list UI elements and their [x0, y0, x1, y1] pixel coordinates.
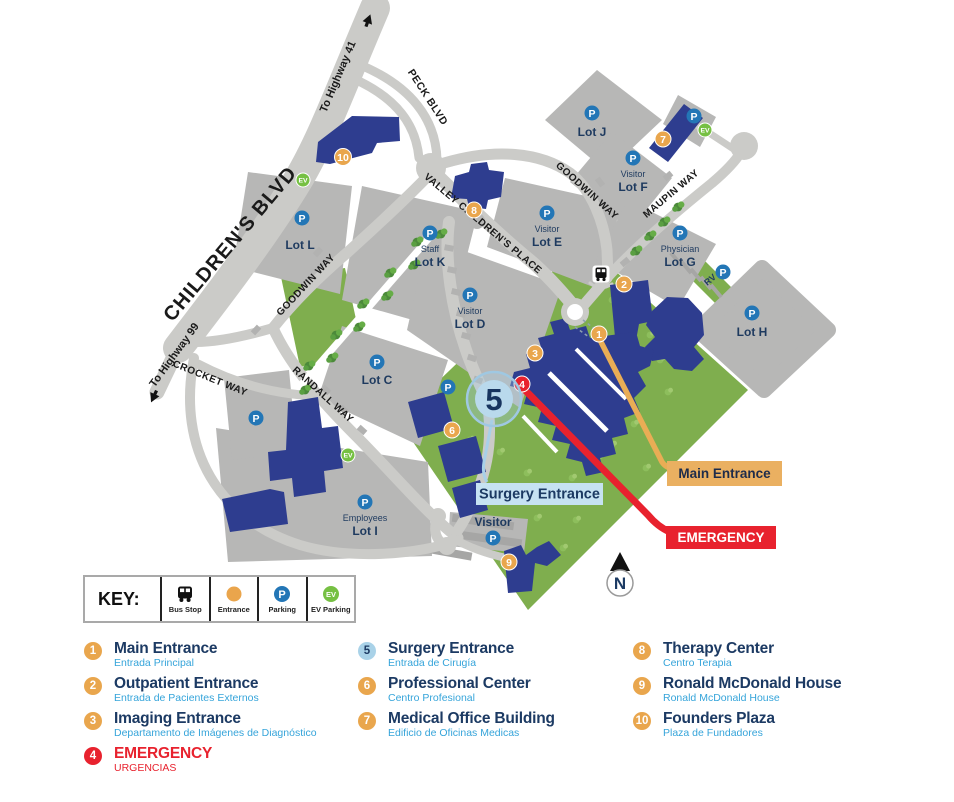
label-lot-e-sub: Visitor [535, 224, 560, 234]
legend-title-6: Professional Center [388, 676, 531, 692]
svg-text:6: 6 [449, 425, 455, 437]
ev-parking-icon: EV [322, 585, 340, 603]
key-title: KEY: [85, 577, 160, 621]
parking-icon-structure [249, 411, 264, 426]
legend-item-6: 6 Professional Center Centro Profesional [358, 676, 628, 711]
parking-icon-surgery [441, 380, 456, 395]
legend-item-9: 9 Ronald McDonald House Ronald McDonald … [633, 676, 903, 711]
label-lot-c: Lot C [362, 373, 393, 387]
legend-title-8: Therapy Center [663, 641, 774, 657]
ev-parking-icon-lot-i [341, 448, 355, 462]
label-lot-h: Lot H [737, 325, 768, 339]
parking-icon-rv [716, 265, 731, 280]
svg-text:2: 2 [621, 279, 627, 291]
legend-marker-6: 6 [358, 677, 376, 695]
svg-text:P: P [279, 589, 286, 601]
map-marker-3: 3 [527, 345, 543, 361]
parking-icon-lot-k [423, 226, 438, 241]
legend-subtitle-7: Edificio de Oficinas Medicas [388, 728, 555, 739]
label-lot-g-sub: Physician [661, 244, 700, 254]
label-lot-k: Lot K [415, 255, 446, 269]
svg-text:1: 1 [596, 329, 602, 341]
legend-title-3: Imaging Entrance [114, 711, 317, 727]
legend-marker-2: 2 [84, 677, 102, 695]
legend-column-2: 5 Surgery Entrance Entrada de Cirugía 6 … [358, 641, 628, 746]
legend-title-10: Founders Plaza [663, 711, 775, 727]
legend-subtitle-2: Entrada de Pacientes Externos [114, 693, 259, 704]
north-label: N [614, 574, 626, 593]
emergency-label: EMERGENCY [677, 530, 764, 545]
label-lot-f-sub: Visitor [621, 169, 646, 179]
legend-column-1: 1 Main Entrance Entrada Principal 2 Outp… [84, 641, 354, 781]
label-lot-e: Lot E [532, 235, 562, 249]
legend-title-9: Ronald McDonald House [663, 676, 841, 692]
key-item-entrance: Entrance [209, 577, 258, 621]
parking-icon: P [273, 585, 291, 603]
surgery-entrance-label: Surgery Entrance [479, 487, 600, 503]
label-lot-g: Lot G [664, 255, 695, 269]
legend-title-4: EMERGENCY [114, 746, 212, 762]
legend-marker-5: 5 [358, 642, 376, 660]
label-lot-d-sub: Visitor [458, 306, 483, 316]
svg-text:7: 7 [660, 134, 666, 146]
key-label-ev-parking: EV Parking [311, 605, 351, 614]
legend-marker-8: 8 [633, 642, 651, 660]
legend-title-5: Surgery Entrance [388, 641, 514, 657]
legend-item-2: 2 Outpatient Entrance Entrada de Pacient… [84, 676, 354, 711]
parking-icon-lot-g [673, 226, 688, 241]
parking-icon-mob [687, 109, 702, 124]
label-lot-k-sub: Staff [421, 244, 440, 254]
visitor-loop-bulb-1 [430, 508, 446, 524]
legend-subtitle-1: Entrada Principal [114, 658, 217, 669]
map-marker-2: 2 [616, 276, 632, 292]
legend-subtitle-3: Departamento de Imágenes de Diagnóstico [114, 728, 317, 739]
svg-text:8: 8 [471, 205, 477, 217]
label-lot-j: Lot J [578, 125, 607, 139]
legend-item-8: 8 Therapy Center Centro Terapia [633, 641, 903, 676]
key-item-bus-stop: Bus Stop [160, 577, 209, 621]
legend-subtitle-9: Ronald McDonald House [663, 693, 841, 704]
legend-marker-4: 4 [84, 747, 102, 765]
parking-icon-lot-e [540, 206, 555, 221]
map-marker-10: 10 [335, 149, 352, 166]
label-lot-f: Lot F [618, 180, 647, 194]
svg-text:10: 10 [337, 152, 349, 164]
parking-icon-lot-h [745, 306, 760, 321]
label-lot-l: Lot L [285, 238, 314, 252]
parking-icon-lot-i [358, 495, 373, 510]
legend-subtitle-10: Plaza de Fundadores [663, 728, 775, 739]
legend-item-4: 4 EMERGENCY URGENCIAS [84, 746, 354, 781]
parking-icon-lot-j [585, 106, 600, 121]
legend-marker-9: 9 [633, 677, 651, 695]
map-marker-9: 9 [501, 554, 517, 570]
legend-title-7: Medical Office Building [388, 711, 555, 727]
ev-parking-icon-mob [698, 123, 712, 137]
visitor-loop-bulb-2 [438, 537, 456, 555]
map-marker-7: 7 [655, 131, 671, 147]
legend-marker-7: 7 [358, 712, 376, 730]
parking-icon-lot-f [626, 151, 641, 166]
svg-text:3: 3 [532, 348, 538, 360]
parking-icon-visitor-south [486, 531, 501, 546]
hospital-roundabout-center [567, 304, 583, 320]
map-marker-8: 8 [466, 202, 482, 218]
map-marker-5-surgery: 5 [467, 372, 521, 426]
legend-subtitle-5: Entrada de Cirugía [388, 658, 514, 669]
legend-marker-3: 3 [84, 712, 102, 730]
north-arrow-icon: N [607, 552, 633, 596]
legend-marker-1: 1 [84, 642, 102, 660]
main-entrance-label: Main Entrance [678, 466, 771, 481]
legend-subtitle-8: Centro Terapia [663, 658, 774, 669]
map-key: KEY: Bus Stop Entrance P Parking EV EV P… [83, 575, 356, 623]
parking-icon-lot-c [370, 355, 385, 370]
svg-text:5: 5 [485, 382, 502, 417]
map-marker-1: 1 [591, 326, 607, 342]
svg-text:EV: EV [326, 590, 336, 599]
svg-text:9: 9 [506, 557, 512, 569]
legend-title-2: Outpatient Entrance [114, 676, 259, 692]
key-label-parking: Parking [268, 605, 296, 614]
legend-title-1: Main Entrance [114, 641, 217, 657]
key-label-bus-stop: Bus Stop [169, 605, 202, 614]
legend-item-1: 1 Main Entrance Entrada Principal [84, 641, 354, 676]
legend-item-3: 3 Imaging Entrance Departamento de Imáge… [84, 711, 354, 746]
legend-item-7: 7 Medical Office Building Edificio de Of… [358, 711, 628, 746]
parking-icon-lot-l [295, 211, 310, 226]
legend-subtitle-4: URGENCIAS [114, 763, 212, 774]
legend-subtitle-6: Centro Profesional [388, 693, 531, 704]
key-label-entrance: Entrance [218, 605, 250, 614]
parking-icon-lot-d [463, 288, 478, 303]
label-lot-i-sub: Employees [343, 513, 388, 523]
bus-icon [176, 585, 194, 603]
ev-parking-icon-lot-l [296, 173, 310, 187]
campus-map-page: P EV [0, 0, 954, 802]
entrance-dot-icon [225, 585, 243, 603]
bus-stop-icon [593, 266, 610, 283]
key-item-ev-parking: EV EV Parking [306, 577, 355, 621]
key-item-parking: P Parking [257, 577, 306, 621]
legend-marker-10: 10 [633, 712, 651, 730]
legend-item-10: 10 Founders Plaza Plaza de Fundadores [633, 711, 903, 746]
map-marker-6: 6 [444, 422, 460, 438]
maupin-culdesac [730, 132, 758, 160]
legend-item-5: 5 Surgery Entrance Entrada de Cirugía [358, 641, 628, 676]
label-lot-i: Lot I [352, 524, 377, 538]
label-visitor-south: Visitor [474, 515, 511, 529]
legend-column-3: 8 Therapy Center Centro Terapia 9 Ronald… [633, 641, 903, 746]
label-lot-d: Lot D [455, 317, 486, 331]
